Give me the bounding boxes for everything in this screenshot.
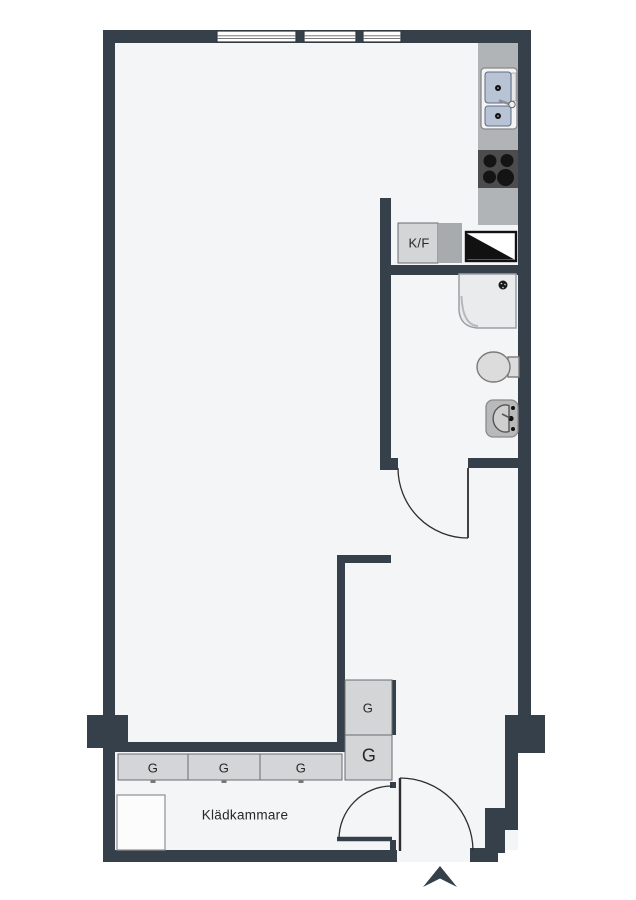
room-label-closet: Klädkammare [202,808,289,823]
wardrobe-label: G [148,761,158,776]
fridge-freezer-label: K/F [408,236,429,251]
entrance-arrow-icon [423,866,457,887]
closet-door-stub-top [390,782,396,788]
dishwasher-icon [466,232,516,261]
closet-door-stub-bottom [390,840,396,850]
window-icon [304,31,356,42]
kitchen-sink-icon [481,68,517,129]
wardrobe-hinge-mark [151,780,156,784]
wall-kitchen-bath [380,198,391,470]
wardrobe-label: G [296,761,306,776]
wall-right [518,43,531,717]
wardrobe-partition [392,680,396,735]
pillar-right [505,715,545,753]
bath-door-frame-stub [391,458,398,470]
wardrobe-label: G [219,761,229,776]
wardrobe-label: G [362,746,376,767]
kitchen-counter-section [438,223,462,263]
window-icon [217,31,296,42]
wardrobe-hinge-mark [222,780,227,784]
wardrobe-hinge-mark [299,780,304,784]
shower-icon [459,274,516,328]
floor-plan: K/F G G G G G Klädkammare [0,0,636,900]
window-icon [363,31,401,42]
wall-right-step [485,808,505,853]
stove-icon [478,150,518,188]
wardrobe-label: G [363,701,373,716]
wall-closet-top [113,742,345,752]
entrance-threshold [397,850,470,862]
toilet-icon [477,352,519,382]
washbasin-icon [486,400,518,437]
wall-right-lower [505,753,518,830]
closet-niche [117,795,165,850]
wall-hall-stub [337,555,391,563]
floor-area [115,43,518,850]
wall-bath-bottom [468,458,518,468]
wall-hall-vertical [337,555,345,752]
floor-plan-drawing [0,0,636,900]
wall-bottom [103,850,397,862]
